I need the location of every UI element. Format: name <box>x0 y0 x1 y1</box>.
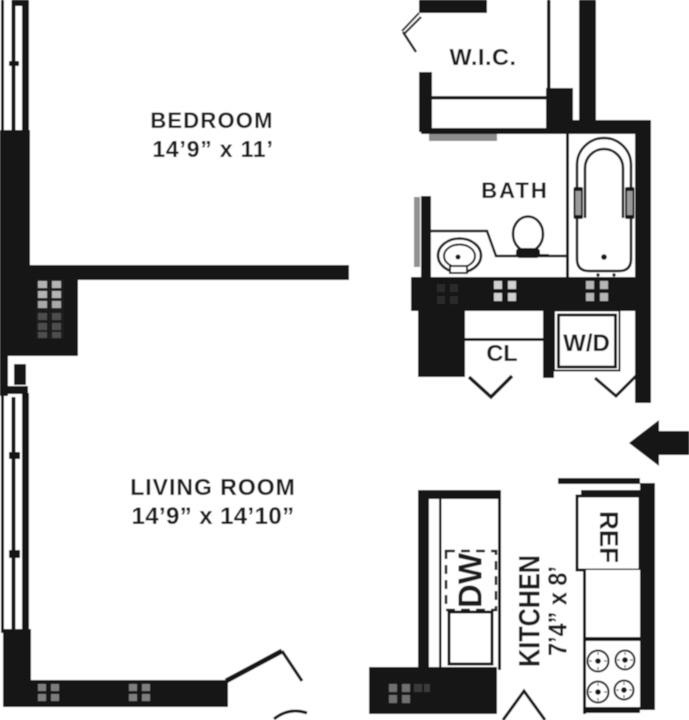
svg-text:7’4” x 8’: 7’4” x 8’ <box>545 566 573 656</box>
svg-text:REF: REF <box>594 511 624 563</box>
svg-text:W/D: W/D <box>563 330 610 357</box>
svg-text:14’9” x 14’10”: 14’9” x 14’10” <box>131 503 294 530</box>
svg-text:14’9” x 11’: 14’9” x 11’ <box>152 136 273 162</box>
svg-text:CL: CL <box>486 340 517 366</box>
svg-text:W.I.C.: W.I.C. <box>450 44 517 70</box>
svg-text:KITCHEN: KITCHEN <box>512 555 546 667</box>
svg-text:BATH: BATH <box>481 178 548 203</box>
svg-text:LIVING ROOM: LIVING ROOM <box>130 474 296 500</box>
svg-text:DW: DW <box>452 552 489 608</box>
svg-text:BEDROOM: BEDROOM <box>150 108 273 133</box>
